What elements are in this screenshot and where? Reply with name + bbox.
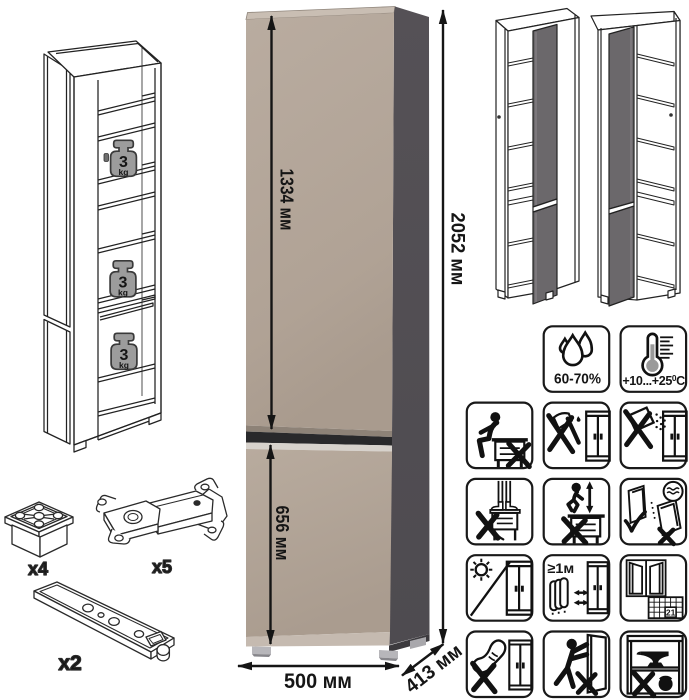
svg-text:500 мм: 500 мм	[284, 670, 352, 693]
svg-text:+10...+250C: +10...+250C	[622, 373, 685, 388]
svg-text:x5: x5	[152, 557, 172, 577]
svg-text:kg: kg	[119, 167, 129, 177]
svg-text:≥1м: ≥1м	[547, 560, 574, 576]
svg-text:x2: x2	[58, 652, 81, 675]
svg-text:21: 21	[666, 608, 676, 618]
svg-text:1334 мм: 1334 мм	[276, 169, 296, 231]
svg-text:60-70%: 60-70%	[554, 371, 601, 387]
svg-text:kg: kg	[119, 360, 129, 370]
svg-text:x4: x4	[28, 559, 48, 579]
svg-text:kg: kg	[118, 287, 128, 297]
svg-text:656 мм: 656 мм	[272, 506, 292, 561]
svg-text:2052 мм: 2052 мм	[446, 213, 467, 286]
